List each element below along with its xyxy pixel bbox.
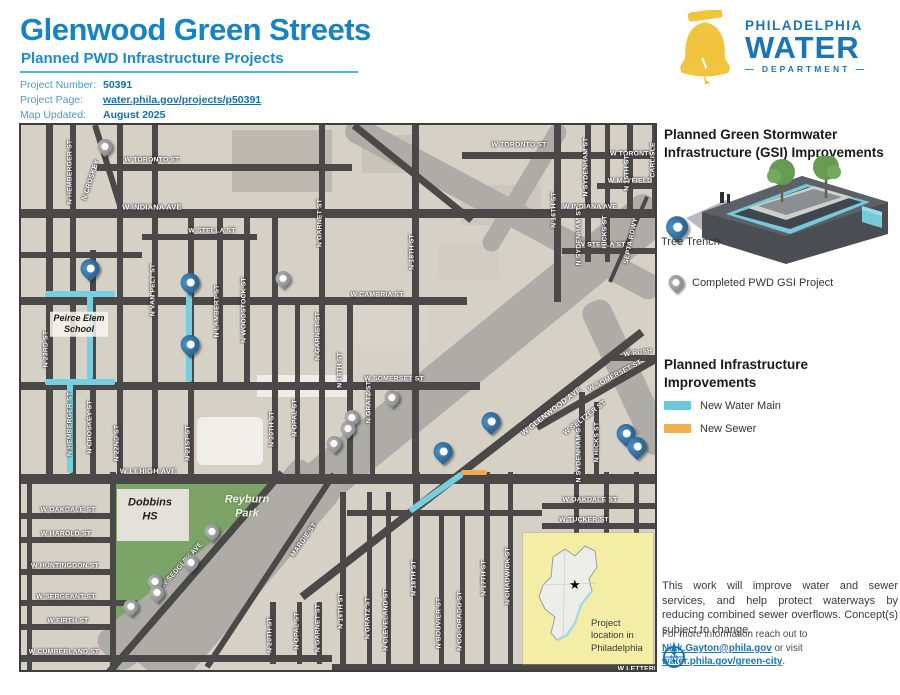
street-label: N 22ND ST [114,425,121,462]
street-label: N OPAL ST [292,399,299,436]
street-label: N GRATZ ST [366,381,373,423]
street-label: W LEHIGH AVE [120,467,177,476]
street-segment [142,234,257,240]
street-label: N 16TH ST [551,192,558,228]
street-label: W TUCKER ST [559,517,608,524]
contact-prefix: For more information reach out to [662,629,807,640]
project-number-row: Project Number: 50391 [20,79,350,91]
street-segment [542,503,657,509]
street-label: N 19TH ST [338,593,345,629]
rail-corridor [128,455,344,672]
page-title: Glenwood Green Streets [20,12,371,48]
contact-line: For more information reach out to Nick.G… [662,628,898,669]
street-label: W SOMERSET ST [364,376,424,383]
street-segment [97,164,352,171]
street-segment [347,297,353,474]
street-label: N 15TH ST [624,155,631,191]
street-label: N VAN PELT ST [150,264,157,317]
street-label: N 23RD ST [43,331,50,368]
water-main-label: New Water Main [700,400,781,412]
street-label: N 20TH ST [267,617,274,653]
street-label: N HEMBERGER ST [67,392,74,456]
street-segment [21,600,137,606]
philadelphia-inset-map: ★ Project location in Philadelphia [523,533,653,664]
street-label: W HAROLD ST [41,531,91,538]
street-segment [21,569,114,575]
street-label: W HUNTINGDON ST [31,563,99,570]
sewer-swatch [664,424,691,433]
street-label: W TORONTO ST [124,157,179,164]
street-segment [542,523,657,529]
street-label: N HICKS ST [594,422,601,463]
street-segment [295,297,300,474]
street-label: W OAKDALE ST [41,507,96,514]
completed-gsi-label: Completed PWD GSI Project [692,277,833,289]
subtitle-rule [20,71,358,73]
street-label: N CHADWICK ST [505,547,512,605]
street-label: W SERGEANT ST [36,594,95,601]
water-main-swatch [664,401,691,410]
street-segment [46,125,53,474]
project-page-row: Project Page: water.phila.gov/projects/p… [20,94,350,106]
place-label: Dobbins HS [125,496,175,524]
street-label: N OPAL ST [294,612,301,649]
street-label: W INDIANA AVE [563,204,617,211]
place-label: Reyburn Park [221,493,273,521]
map-updated-label: Map Updated: [20,109,86,121]
street-label: N GARNET ST [317,199,324,247]
street-label: N SYDENHAM ST [576,424,583,483]
street-label: N 18TH ST [409,234,416,270]
water-main-overlay [45,379,115,385]
street-segment [21,655,332,662]
project-map: W TORONTO STW TORONTO STW TORONTOW INDIA… [19,123,657,672]
street-label: N SYDENHAM ST [576,207,583,266]
north-compass-icon: N [659,640,689,672]
street-segment [27,482,32,672]
street-label: N 21ST ST [185,425,192,460]
street-segment [21,252,142,258]
street-segment [332,664,657,671]
place-label: Peirce Elem School [50,312,108,337]
pwd-logo: PHILADELPHIA WATER — DEPARTMENT — [672,10,892,105]
infra-heading: Planned Infrastructure Improvements [664,356,844,391]
street-label: W TORONTO ST [491,142,546,149]
street-segment [110,472,116,672]
street-segment [21,474,657,484]
street-label: W CAMBRIA ST [350,292,403,299]
street-segment [340,492,346,664]
sewer-overlay [461,470,487,475]
street-label: W FIRTH ST [48,618,89,625]
street-label: N COLORADO ST [457,591,464,651]
contact-mid: or visit [772,643,803,654]
project-location-star: ★ [569,577,581,593]
page-subtitle: Planned PWD Infrastructure Projects [21,50,284,67]
street-label: W INDIANA AVE [122,203,181,212]
street-label: W OAKDALE ST [563,497,618,504]
map-updated-value: August 2025 [103,109,165,121]
street-label: N 19TH ST [337,352,344,388]
logo-department: — DEPARTMENT — [745,64,867,74]
street-label: N CROSKEY [81,159,101,201]
street-label: N 18TH ST [411,560,418,596]
street-label: CARLISLE [650,142,657,178]
street-label: W CUMBERLAND ST [29,649,100,656]
street-label: N CLEVELAND ST [383,589,390,651]
street-segment [21,624,114,630]
street-label: N BOUVIER ST [436,598,443,649]
street-label: N GARNET ST [315,312,322,360]
street-segment [21,537,114,543]
street-label: N SYDENHAM ST [583,138,590,197]
street-label: N 17TH ST [481,560,488,596]
liberty-bell-icon [672,10,738,90]
street-label: N GRATZ ST [365,597,372,639]
logo-water: WATER [745,33,867,62]
project-number-label: Project Number: [20,79,96,91]
street-label: N HEMBERGER ST [67,140,74,204]
street-segment [117,125,123,474]
street-label: W STELLA ST [188,228,235,235]
glenwood-green-streets-flyer: { "header": { "title": "Glenwood Green S… [0,0,900,695]
pwd-logo-text: PHILADELPHIA WATER — DEPARTMENT — [745,18,867,74]
street-label: HICKS ST [602,215,609,248]
project-number-value: 50391 [103,79,132,91]
map-updated-row: Map Updated: August 2025 [20,109,350,121]
street-segment [21,513,114,519]
contact-suffix: . [782,656,785,667]
project-page-label: Project Page: [20,94,83,106]
street-label: W LETTERLY [618,666,657,673]
water-main-overlay [45,291,115,297]
project-page-link[interactable]: water.phila.gov/projects/p50391 [103,94,261,106]
street-label: N 20TH ST [269,411,276,447]
tree-trench-label: Tree Trench [661,236,720,248]
tree-trench-illustration [686,156,894,268]
street-label: N LAMBERT ST [214,285,221,338]
street-label: N GARNET ST [315,604,322,652]
street-label: W TORONTO [610,151,654,158]
street-segment [319,125,325,474]
inset-caption: Project location in Philadelphia [591,618,649,655]
street-label: N CROSKEY ST [87,400,94,453]
street-label: N WOODSTOCK ST [241,277,248,343]
sewer-label: New Sewer [700,423,756,435]
